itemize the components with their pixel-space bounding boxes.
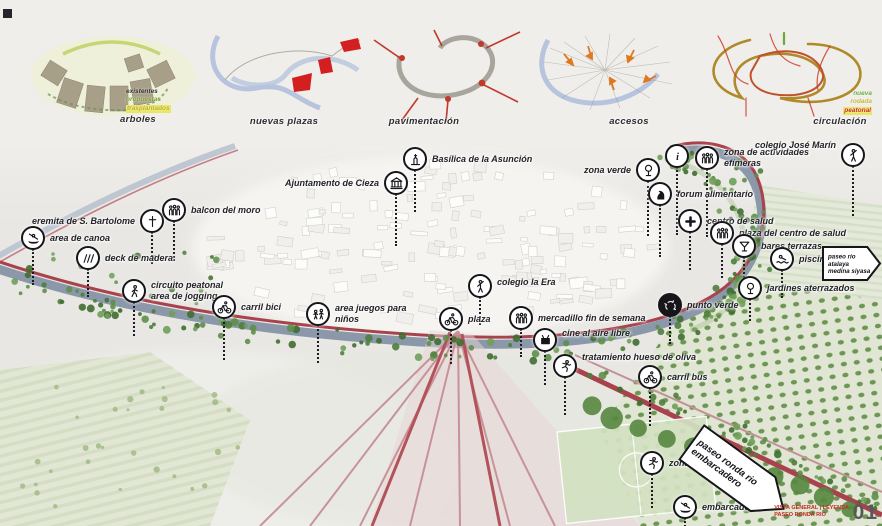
arrow-text: medina siyasa bbox=[828, 268, 871, 275]
sheet-caption: VISTA GENERAL | LEYENDA PASEO RONDA RIO bbox=[774, 505, 849, 519]
arrow-text: paseo rio bbox=[827, 254, 856, 261]
direction-arrow-paseo-rio-atalaya: paseo rioatalayamedina siyasa bbox=[822, 246, 882, 285]
direction-arrow-layer: paseo rioatalayamedina siyasapaseo ronda… bbox=[0, 0, 882, 526]
masterplan-poster: existentespropuestastrasplantados arbole… bbox=[0, 0, 882, 526]
arrow-text: atalaya bbox=[828, 261, 850, 268]
caption-line: PASEO RONDA RIO bbox=[774, 512, 849, 519]
caption-line: VISTA GENERAL | LEYENDA bbox=[774, 505, 849, 512]
page-number: 01 bbox=[853, 501, 878, 525]
corner-mark bbox=[3, 9, 12, 18]
